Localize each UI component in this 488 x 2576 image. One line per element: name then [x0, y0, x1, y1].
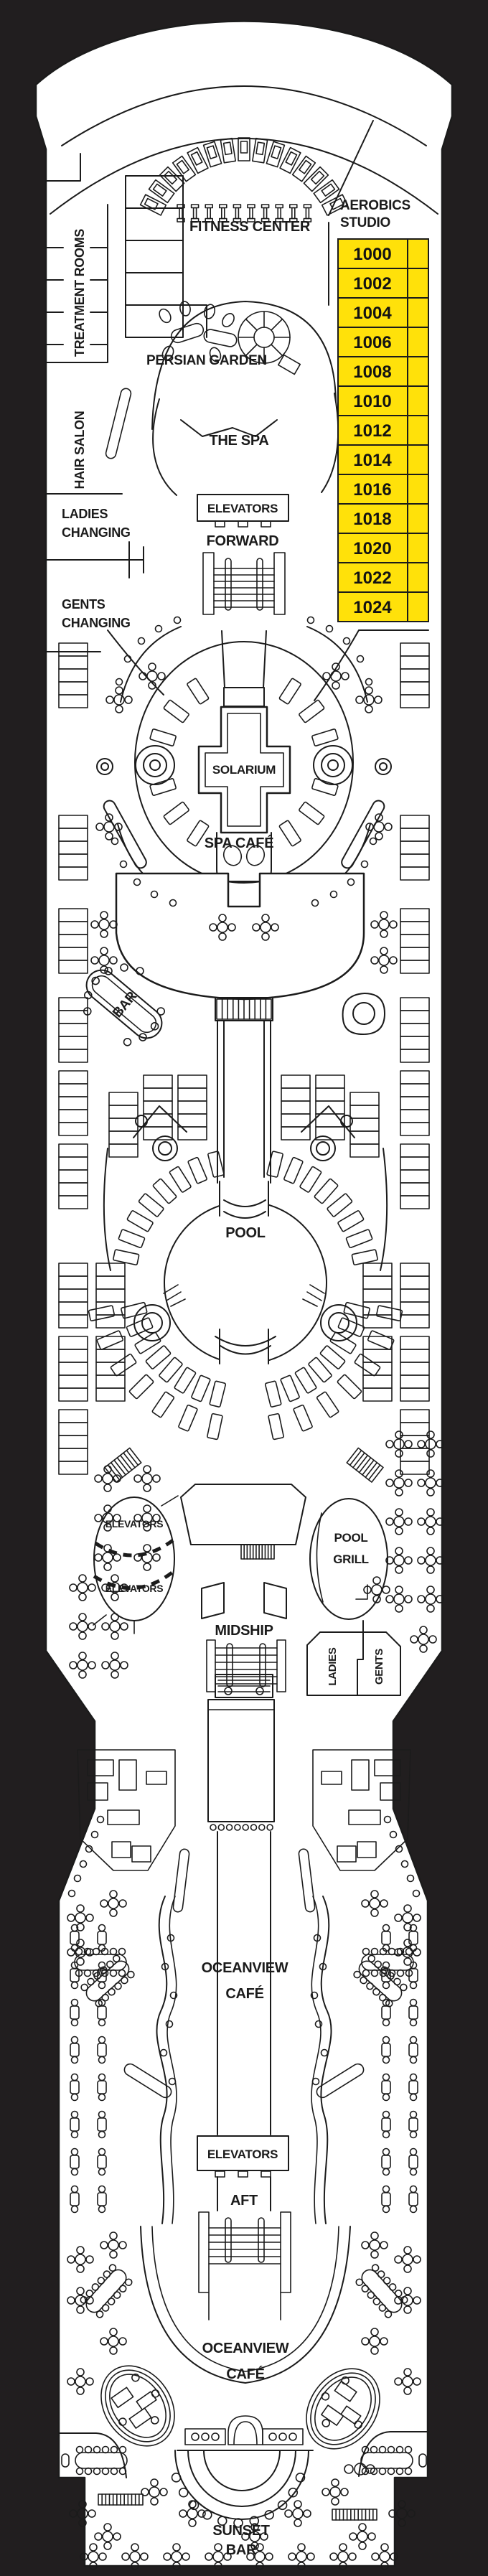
label-ladies: LADIES [327, 1647, 339, 1686]
svg-text:1010: 1010 [353, 392, 391, 411]
cabin-1018[interactable]: 1018 [338, 504, 428, 533]
label-pool-grill-2: GRILL [333, 1552, 369, 1566]
svg-text:1020: 1020 [353, 539, 391, 558]
label-elevators-aft: ELEVATORS [207, 2148, 278, 2161]
label-aerobics-studio: AEROBICS [340, 198, 410, 213]
deck-plan: AEROBICS STUDIO FITNESS CENTER TREATMENT… [0, 0, 488, 2576]
label-oceanview-cafe: OCEANVIEW [202, 1960, 288, 1976]
label-forward: FORWARD [207, 533, 279, 549]
cabin-1012[interactable]: 1012 [338, 416, 428, 445]
cabin-1020[interactable]: 1020 [338, 533, 428, 563]
svg-text:1006: 1006 [353, 333, 391, 352]
label-the-spa: THE SPA [209, 433, 268, 449]
cabin-1000[interactable]: 1000 [338, 239, 428, 268]
cabin-1006[interactable]: 1006 [338, 327, 428, 357]
cabin-1016[interactable]: 1016 [338, 474, 428, 504]
svg-text:1002: 1002 [353, 274, 391, 294]
svg-text:1022: 1022 [353, 568, 391, 588]
svg-text:1014: 1014 [353, 451, 392, 470]
label-oceanview-cafe-aft-2: CAFÉ [226, 2366, 264, 2382]
svg-text:1018: 1018 [353, 510, 391, 529]
cabin-list: 1000100210041006100810101012101410161018… [338, 239, 428, 622]
label-persian-garden: PERSIAN GARDEN [146, 353, 267, 368]
label-gents: GENTS [373, 1649, 385, 1685]
label-elevators-forward: ELEVATORS [207, 502, 278, 515]
svg-text:1016: 1016 [353, 480, 391, 500]
cabin-1014[interactable]: 1014 [338, 445, 428, 474]
deck-plan-page: AEROBICS STUDIO FITNESS CENTER TREATMENT… [0, 0, 488, 2576]
label-hair-salon: HAIR SALON [72, 411, 87, 490]
label-spa-cafe: SPA CAFÉ [205, 835, 274, 851]
cabin-1022[interactable]: 1022 [338, 563, 428, 592]
svg-text:1004: 1004 [353, 304, 392, 323]
cabin-1002[interactable]: 1002 [338, 268, 428, 298]
label-pool: POOL [225, 1225, 266, 1241]
svg-text:1012: 1012 [353, 421, 391, 441]
label-aerobics-studio-2: STUDIO [340, 215, 390, 230]
svg-text:1024: 1024 [353, 598, 392, 617]
label-gents-changing: GENTS [62, 597, 105, 612]
label-ladies-changing-2: CHANGING [62, 525, 131, 540]
label-pool-grill: POOL [334, 1531, 368, 1545]
cabin-1004[interactable]: 1004 [338, 298, 428, 327]
svg-text:1000: 1000 [353, 245, 391, 264]
cabin-1008[interactable]: 1008 [338, 357, 428, 386]
label-treatment-rooms: TREATMENT ROOMS [72, 229, 87, 357]
label-midship: MIDSHIP [215, 1623, 273, 1639]
label-solarium: SOLARIUM [212, 763, 276, 777]
label-oceanview-cafe-aft: OCEANVIEW [202, 2341, 289, 2356]
label-oceanview-cafe-2: CAFÉ [225, 1985, 263, 2002]
label-ladies-changing: LADIES [62, 507, 108, 521]
cabin-1024[interactable]: 1024 [338, 592, 428, 622]
cabin-1010[interactable]: 1010 [338, 386, 428, 416]
svg-text:1008: 1008 [353, 362, 391, 382]
label-gents-changing-2: CHANGING [62, 616, 131, 630]
label-aft: AFT [230, 2193, 258, 2209]
